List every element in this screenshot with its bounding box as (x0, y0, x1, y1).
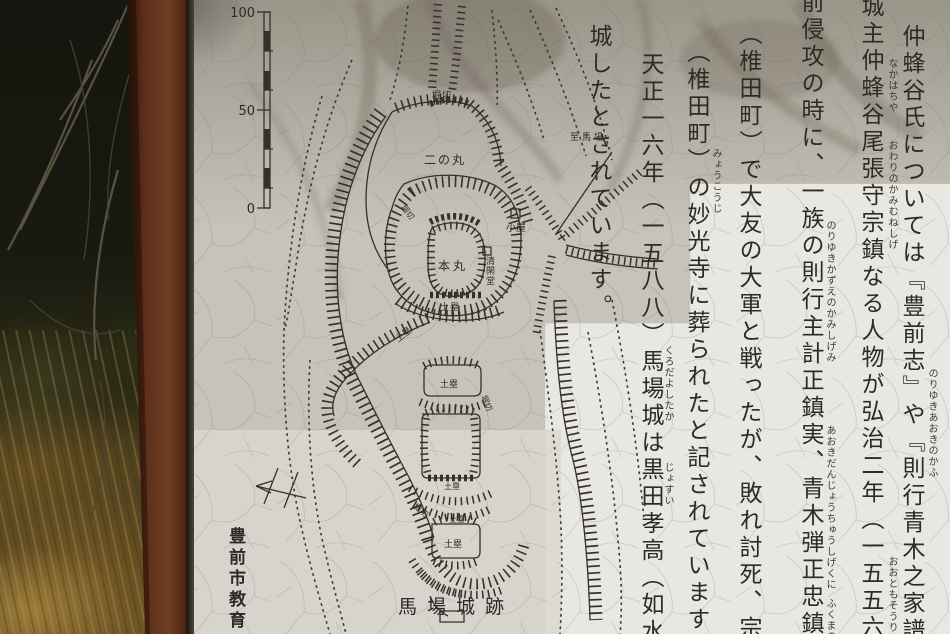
furigana-owarinokami: おわりのかみむねしげ (886, 140, 896, 250)
furigana-kuroda: くろだよしたか (662, 345, 672, 422)
label-horikiri-mid: 堀切 (479, 394, 493, 412)
furigana-nakahachiya: なかはちや (886, 58, 896, 113)
label-ninomaru: 二の丸 (424, 153, 466, 167)
label-dorui-a: 土塁 (440, 301, 460, 313)
furigana-josui: じょすい (662, 462, 672, 506)
credit-text: 豊前市教育 (226, 527, 243, 632)
label-dorui-c: 土塁 (440, 378, 458, 390)
scale-bar: 100 50 0 (230, 6, 273, 217)
label-dorui-e: 土塁 (444, 538, 462, 550)
text-column-1: 仲蜂谷氏については『豊前志』や『則行青木之家譜』に記録が見られ (899, 24, 922, 634)
label-dorui-d: 土塁 (449, 514, 465, 524)
furigana-noriyuki-kazue: のりゆきかずえのかみしげみ (824, 220, 834, 363)
site-title: 馬場城跡 (398, 598, 514, 617)
scale-100: 100 (230, 6, 255, 21)
furigana-fukumanoe: ふくまのえ (824, 598, 834, 634)
text-column-4: （椎田町）で大友の大軍と戦ったが、敗れ討死、宗鎮の遺骸は上の河 (736, 22, 759, 634)
text-column-6: 天正一六年（一五八八）馬場城は黒田孝高（如水）の軍勢に攻められ (638, 52, 661, 634)
label-horikiri-top: 堀切 (432, 90, 452, 101)
text-column-2: 城主仲蜂谷尾張守宗鎮なる人物が弘治二年（一五五六）、大友宗麟の豊 (858, 0, 881, 634)
label-koya: 小屋 (506, 222, 526, 234)
text-column-5: （椎田町）の妙光寺に葬られたと記されています。 (684, 40, 707, 634)
label-seikando: 清閑堂 (484, 256, 493, 286)
north-arrow (256, 468, 306, 508)
furigana-otomo-sorin: おおともそうりん (886, 556, 896, 634)
photo-of-castle-sign: 100 50 0 (0, 0, 950, 634)
label-honmaru: 本丸 (438, 259, 468, 273)
scale-0: 0 (247, 202, 255, 217)
outer-slope-band (331, 104, 596, 620)
inner-ring (386, 175, 522, 315)
furigana-myokoji: みょうこうじ (710, 148, 720, 214)
text-column-3: 前侵攻の時に、一族の則行主計正鎮実、青木弾正忠鎮国と共に福間江 (798, 0, 821, 634)
label-dorui-row: 土塁 (444, 481, 460, 491)
furigana-noriyuki-aoki: のりゆきあおきのかふ (926, 368, 936, 478)
scale-50: 50 (238, 104, 255, 119)
label-horikiri-left: 堀切 (399, 203, 416, 221)
north-ridge (430, 4, 470, 104)
furigana-aoki-danjo: あおきだんじょうちゅうしげくに (824, 425, 834, 590)
text-column-7: 城したとされています。 (586, 24, 609, 384)
